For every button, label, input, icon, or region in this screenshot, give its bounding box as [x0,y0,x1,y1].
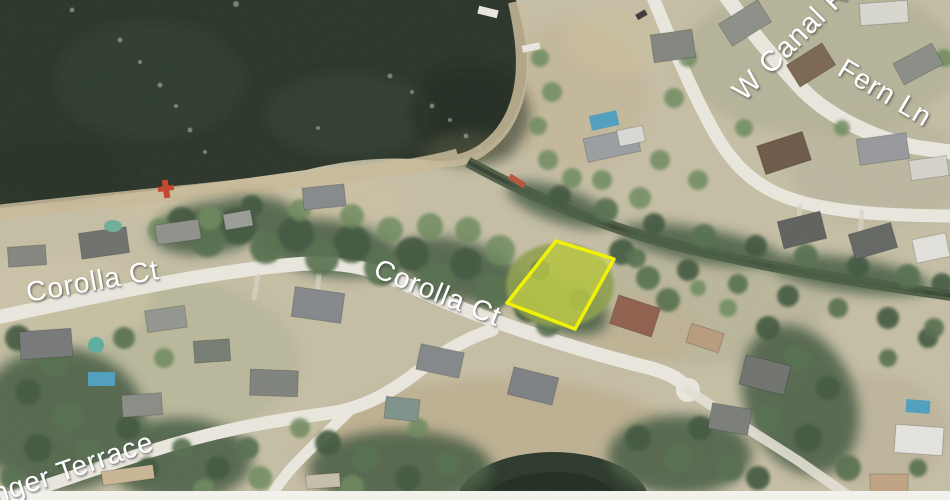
aerial-map-image: Corolla Ct Corolla Ct W Canal Rd Fern Ln… [0,0,950,500]
aerial-map: Corolla Ct Corolla Ct W Canal Rd Fern Ln… [0,0,950,500]
photo-grain [0,0,950,500]
bottom-border [0,491,950,500]
